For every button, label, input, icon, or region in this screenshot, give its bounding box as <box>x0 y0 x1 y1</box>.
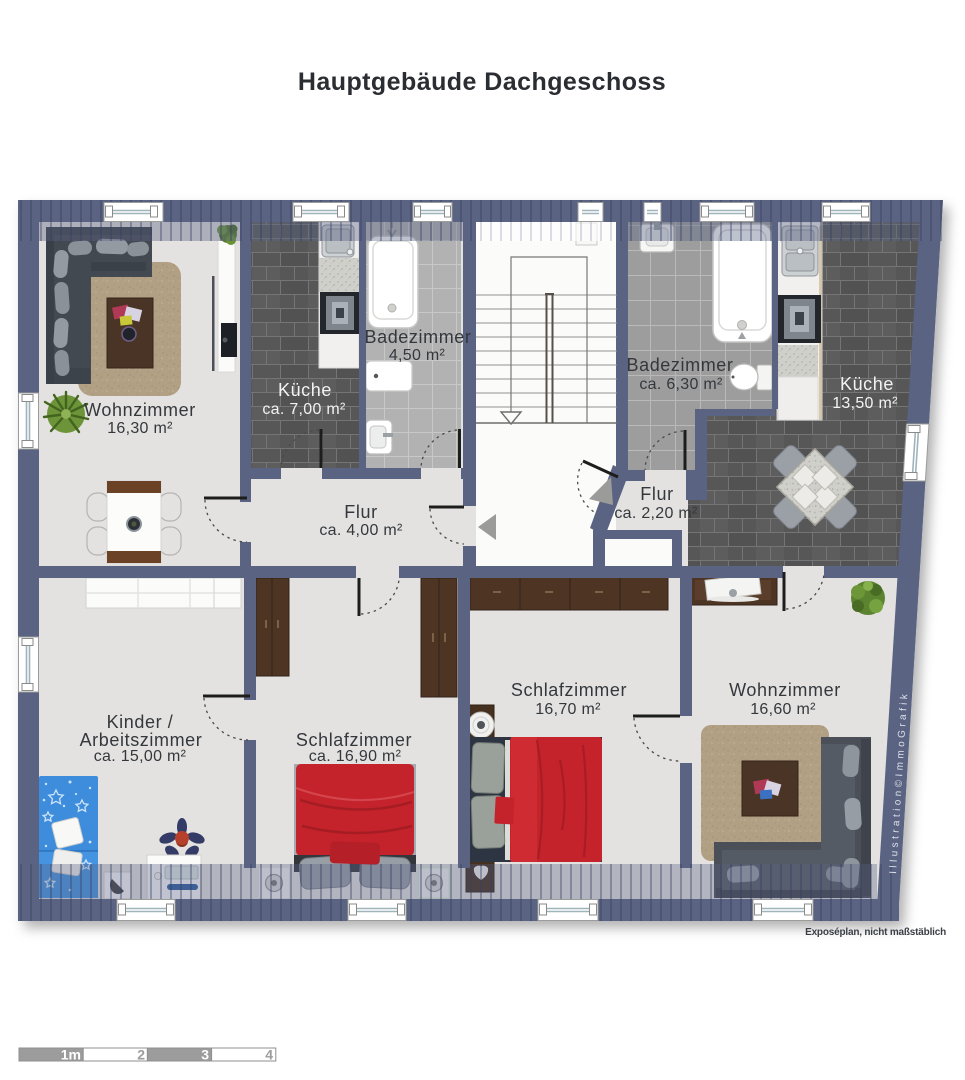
svg-text:Badezimmer: Badezimmer <box>626 355 733 375</box>
svg-text:Kinder /: Kinder / <box>107 712 174 732</box>
svg-text:ca. 16,90 m²: ca. 16,90 m² <box>309 748 402 765</box>
svg-text:ca. 15,00 m²: ca. 15,00 m² <box>94 748 187 765</box>
svg-text:4: 4 <box>265 1047 273 1063</box>
svg-text:Wohnzimmer: Wohnzimmer <box>729 680 841 700</box>
svg-text:1m: 1m <box>61 1047 81 1063</box>
svg-text:16,30 m²: 16,30 m² <box>107 420 173 437</box>
svg-text:Flur: Flur <box>344 502 377 522</box>
svg-text:2: 2 <box>137 1047 145 1063</box>
svg-text:Exposéplan, nicht maßstäblich: Exposéplan, nicht maßstäblich <box>805 927 946 938</box>
svg-text:Küche: Küche <box>278 380 332 400</box>
svg-text:Arbeitszimmer: Arbeitszimmer <box>80 730 203 750</box>
svg-text:13,50 m²: 13,50 m² <box>832 395 898 412</box>
svg-text:ca. 2,20 m²: ca. 2,20 m² <box>614 505 698 522</box>
svg-text:Schlafzimmer: Schlafzimmer <box>511 680 627 700</box>
svg-text:ca. 6,30 m²: ca. 6,30 m² <box>639 376 723 393</box>
svg-text:16,60 m²: 16,60 m² <box>750 701 816 718</box>
svg-text:3: 3 <box>201 1047 209 1063</box>
svg-text:ca. 4,00 m²: ca. 4,00 m² <box>319 522 403 539</box>
svg-text:ca. 7,00 m²: ca. 7,00 m² <box>262 401 346 418</box>
svg-text:Badezimmer: Badezimmer <box>364 327 471 347</box>
svg-text:Küche: Küche <box>840 374 894 394</box>
svg-text:16,70 m²: 16,70 m² <box>535 701 601 718</box>
svg-text:4,50 m²: 4,50 m² <box>389 347 446 364</box>
svg-text:Hauptgebäude Dachgeschoss: Hauptgebäude Dachgeschoss <box>298 68 666 96</box>
svg-text:Wohnzimmer: Wohnzimmer <box>84 400 196 420</box>
svg-text:Flur: Flur <box>640 484 673 504</box>
svg-text:Schlafzimmer: Schlafzimmer <box>296 730 412 750</box>
